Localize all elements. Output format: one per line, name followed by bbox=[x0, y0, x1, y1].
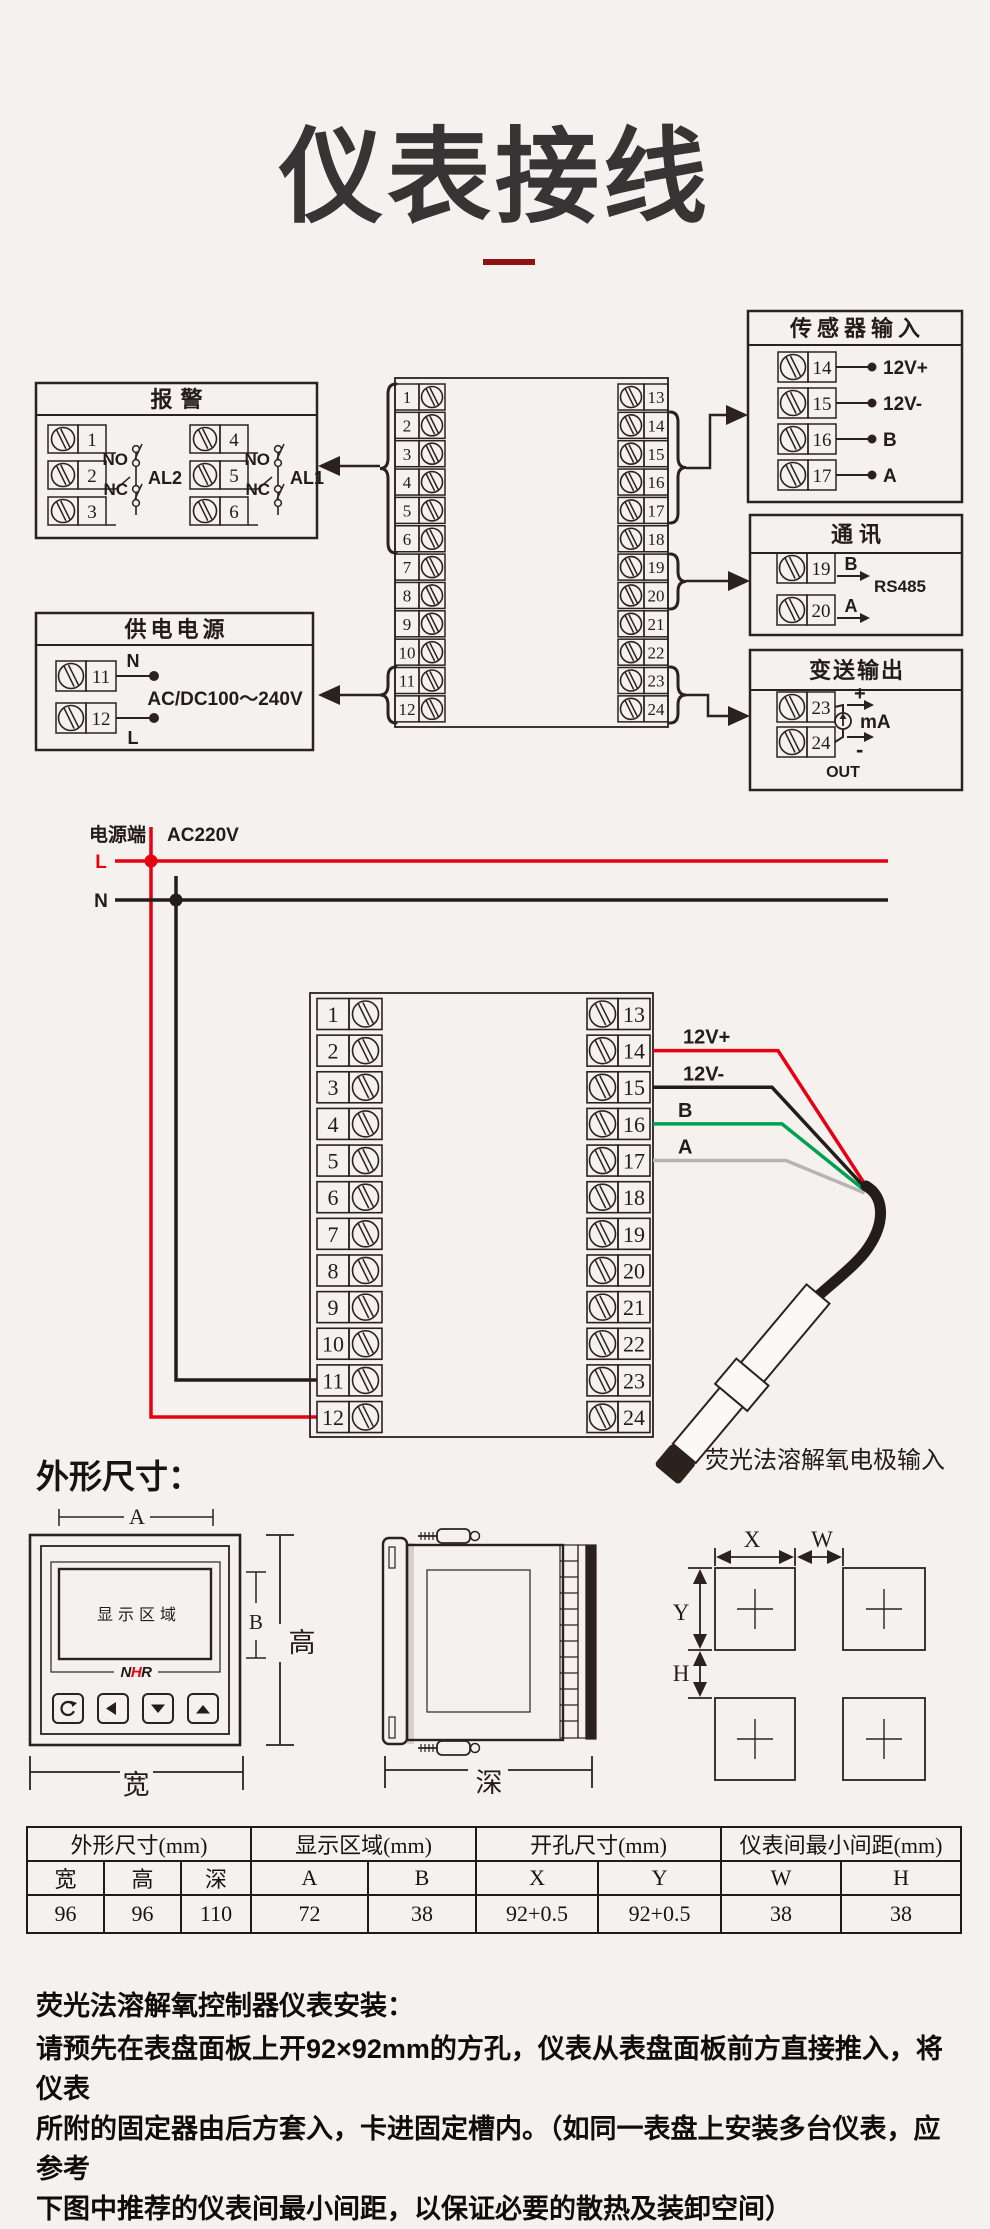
probe-cable bbox=[818, 1186, 881, 1296]
terminal-number: 9 bbox=[403, 615, 412, 634]
terminal-17: 17 bbox=[618, 497, 668, 523]
installation-line: 下图中推荐的仪表间最小间距，以保证必要的散热及装卸空间） bbox=[36, 2189, 960, 2229]
terminal-4: 4 bbox=[190, 425, 248, 453]
terminal-20: 20 bbox=[587, 1255, 650, 1286]
terminal-number: 24 bbox=[812, 733, 832, 754]
terminal-number: 5 bbox=[328, 1148, 339, 1173]
terminal-19: 19 bbox=[618, 554, 668, 580]
terminal-number: 19 bbox=[648, 558, 665, 577]
sensor-input-box: 传感器输入1412V+1512V-16B17A bbox=[748, 311, 962, 502]
terminal-4: 4 bbox=[395, 469, 445, 495]
terminal-23: 23 bbox=[587, 1365, 650, 1396]
terminal-number: 12 bbox=[399, 700, 416, 719]
installation-line: 请预先在表盘面板上开92×92mm的方孔，仪表从表盘面板前方直接推入，将仪表 bbox=[36, 2029, 960, 2109]
terminal-16: 16 bbox=[618, 469, 668, 495]
probe-wire-label: A bbox=[678, 1137, 692, 1159]
terminal-14: 14 bbox=[778, 352, 836, 382]
terminal-number: 17 bbox=[623, 1148, 645, 1173]
terminal-3: 3 bbox=[48, 497, 106, 525]
terminal-number: 20 bbox=[812, 601, 831, 622]
table-value: 38 bbox=[721, 1895, 841, 1933]
terminal-number: 14 bbox=[813, 358, 833, 379]
terminal-number: 2 bbox=[328, 1039, 339, 1064]
middle-terminal-block: 123456789101112131415161718192021222324 bbox=[310, 993, 653, 1437]
terminal-12: 12 bbox=[56, 703, 116, 733]
comm-box: 通讯19B20ARS485 bbox=[750, 515, 962, 635]
terminal-number: 17 bbox=[813, 466, 832, 487]
terminal-23: 23 bbox=[777, 692, 835, 722]
dimension-spec-table: 外形尺寸(mm) 显示区域(mm) 开孔尺寸(mm) 仪表间最小间距(mm) 宽… bbox=[26, 1826, 962, 1934]
comm-box-title: 通讯 bbox=[831, 522, 887, 547]
height-label: 高 bbox=[289, 1628, 316, 1658]
terminal-number: 5 bbox=[229, 466, 239, 487]
table-value: 92+0.5 bbox=[598, 1895, 721, 1933]
terminal-11: 11 bbox=[395, 668, 445, 694]
terminal-number: 18 bbox=[623, 1185, 645, 1210]
terminal-13: 13 bbox=[618, 384, 668, 410]
table-group-cutout: 开孔尺寸(mm) bbox=[476, 1827, 721, 1861]
sensor-signal-label: B bbox=[883, 430, 897, 451]
terminal-6: 6 bbox=[317, 1182, 382, 1213]
table-header: X bbox=[476, 1861, 598, 1895]
probe-wire-label: 12V- bbox=[683, 1063, 724, 1085]
terminal-8: 8 bbox=[395, 582, 445, 608]
terminal-number: 4 bbox=[229, 430, 239, 451]
connection-arrows bbox=[318, 384, 750, 726]
terminal-10: 10 bbox=[395, 639, 445, 665]
installation-line: 所附的固定器由后方套入，卡进固定槽内。（如同一表盘上安装多台仪表，应参考 bbox=[36, 2109, 960, 2189]
alarm-channel-label: AL2 bbox=[148, 468, 182, 488]
left-icon bbox=[106, 1702, 116, 1715]
terminal-number: 23 bbox=[812, 698, 831, 719]
terminal-number: 20 bbox=[648, 587, 665, 606]
terminal-number: 15 bbox=[813, 394, 832, 415]
terminal-number: 10 bbox=[399, 643, 416, 662]
no-label: NO bbox=[103, 450, 129, 469]
dimensions-heading: 外形尺寸： bbox=[36, 1450, 201, 1498]
table-value: 38 bbox=[368, 1895, 476, 1933]
mains-source-label: 电源端 bbox=[89, 823, 146, 846]
terminal-8: 8 bbox=[317, 1255, 382, 1286]
terminal-number: 15 bbox=[623, 1075, 645, 1100]
terminal-number: 21 bbox=[648, 615, 665, 634]
side-bezel bbox=[383, 1538, 407, 1744]
arrow-icon bbox=[728, 571, 750, 591]
ma-label: mA bbox=[860, 712, 891, 733]
terminal-number: 13 bbox=[648, 388, 665, 407]
front-view-drawing: A 显示区域 NHR B bbox=[30, 1504, 316, 1800]
terminal-number: 7 bbox=[328, 1222, 339, 1247]
brand-logo: NHR bbox=[120, 1664, 152, 1681]
terminal-number: 4 bbox=[403, 473, 412, 492]
terminal-12: 12 bbox=[317, 1402, 382, 1433]
probe-wiring: 12V+12V-BA荧光法溶解氧电极输入 bbox=[650, 1027, 945, 1489]
terminal-number: 2 bbox=[403, 416, 412, 435]
table-value: 92+0.5 bbox=[476, 1895, 598, 1933]
terminal-2: 2 bbox=[395, 412, 445, 438]
alarm-box-title: 报警 bbox=[150, 387, 210, 412]
terminal-14: 14 bbox=[587, 1035, 650, 1066]
terminal-number: 3 bbox=[403, 445, 412, 464]
out-label: OUT bbox=[826, 764, 860, 781]
terminal-6: 6 bbox=[190, 497, 248, 525]
top-terminal-block: 123456789101112131415161718192021222324 bbox=[395, 378, 668, 727]
dim-b-label: B bbox=[249, 1610, 263, 1634]
terminal-number: 12 bbox=[92, 709, 111, 730]
sensor-signal-label: 12V+ bbox=[883, 358, 928, 379]
l-label: L bbox=[95, 852, 107, 873]
terminal-number: 2 bbox=[87, 466, 97, 487]
brace bbox=[380, 667, 396, 723]
terminal-1: 1 bbox=[48, 425, 106, 453]
terminal-17: 17 bbox=[587, 1145, 650, 1176]
terminal-number: 1 bbox=[87, 430, 97, 451]
terminal-number: 18 bbox=[648, 530, 665, 549]
terminal-15: 15 bbox=[618, 441, 668, 467]
protocol-label: RS485 bbox=[874, 577, 926, 596]
terminal-14: 14 bbox=[618, 412, 668, 438]
side-body bbox=[407, 1545, 563, 1740]
terminal-number: 4 bbox=[328, 1112, 339, 1137]
installation-heading: 荧光法溶解氧控制器仪表安装： bbox=[36, 1986, 960, 2026]
down-icon bbox=[151, 1705, 165, 1714]
center-marks bbox=[737, 1589, 902, 1759]
brace bbox=[670, 667, 686, 723]
terminal-number: 3 bbox=[87, 502, 97, 523]
cutout-h-label: H bbox=[673, 1661, 690, 1686]
cutout-w-label: W bbox=[811, 1527, 833, 1552]
terminal-15: 15 bbox=[587, 1072, 650, 1103]
terminal-17: 17 bbox=[778, 460, 836, 490]
terminal-16: 16 bbox=[778, 424, 836, 454]
table-value: 96 bbox=[104, 1895, 181, 1933]
terminal-number: 22 bbox=[648, 643, 665, 662]
terminal-2: 2 bbox=[317, 1035, 382, 1066]
terminal-number: 15 bbox=[648, 445, 665, 464]
generated-wiring: 123456789101112131415161718192021222324报… bbox=[36, 311, 962, 1488]
terminal-16: 16 bbox=[587, 1108, 650, 1139]
terminal-24: 24 bbox=[777, 727, 835, 757]
terminal-number: 9 bbox=[328, 1295, 339, 1320]
terminal-number: 16 bbox=[623, 1112, 645, 1137]
table-value: 38 bbox=[841, 1895, 961, 1933]
return-button[interactable] bbox=[53, 1694, 83, 1723]
terminal-11: 11 bbox=[56, 661, 116, 691]
terminal-18: 18 bbox=[587, 1182, 650, 1213]
terminal-22: 22 bbox=[587, 1328, 650, 1359]
table-group-spacing: 仪表间最小间距(mm) bbox=[721, 1827, 961, 1861]
terminal-number: 23 bbox=[648, 672, 665, 691]
comm-signal-label: B bbox=[845, 554, 858, 574]
arrow-icon bbox=[860, 571, 870, 581]
terminal-number: 17 bbox=[648, 502, 666, 521]
terminal-12: 12 bbox=[395, 696, 445, 722]
terminal-9: 9 bbox=[317, 1292, 382, 1323]
sensor-signal-label: 12V- bbox=[883, 394, 922, 415]
terminal-3: 3 bbox=[317, 1072, 382, 1103]
arrow-icon bbox=[864, 732, 874, 742]
alarm-channel-label: AL1 bbox=[290, 468, 324, 488]
table-header: H bbox=[841, 1861, 961, 1895]
power-range-label: AC/DC100～240V bbox=[147, 689, 303, 710]
nc-label: NC bbox=[245, 480, 270, 499]
power-supply-box-title: 供电电源 bbox=[123, 617, 228, 642]
terminal-number: 12 bbox=[322, 1405, 344, 1430]
cutout-drawing: X W Y H bbox=[673, 1527, 925, 1780]
terminal-number: 6 bbox=[328, 1185, 339, 1210]
alarm-group-AL2: 123NONCAL2 bbox=[48, 425, 182, 525]
terminal-number: 6 bbox=[229, 502, 239, 523]
terminal-9: 9 bbox=[395, 611, 445, 637]
depth-label: 深 bbox=[476, 1768, 503, 1798]
terminal-20: 20 bbox=[777, 595, 835, 625]
terminal-number: 24 bbox=[623, 1405, 645, 1430]
comm-signal-label: A bbox=[845, 596, 858, 616]
table-header: B bbox=[368, 1861, 476, 1895]
table-header: 宽 bbox=[27, 1861, 104, 1895]
arrow-icon bbox=[726, 405, 748, 425]
terminal-13: 13 bbox=[587, 999, 650, 1030]
side-terminal-strip bbox=[560, 1545, 596, 1739]
table-header: Y bbox=[598, 1861, 721, 1895]
terminal-number: 11 bbox=[92, 667, 110, 688]
sensor-signal-label: A bbox=[883, 466, 897, 487]
probe-wire-label: 12V+ bbox=[683, 1027, 730, 1049]
terminal-number: 6 bbox=[403, 530, 412, 549]
arrow-icon bbox=[864, 700, 874, 710]
table-group-outline: 外形尺寸(mm) bbox=[27, 1827, 251, 1861]
table-header: 高 bbox=[104, 1861, 181, 1895]
terminal-number: 8 bbox=[403, 587, 412, 606]
terminal-1: 1 bbox=[317, 999, 382, 1030]
alarm-box: 报警123NONCAL2456NONCAL1 bbox=[36, 383, 324, 538]
panel-inner bbox=[41, 1546, 229, 1734]
brace bbox=[670, 554, 686, 609]
terminal-19: 19 bbox=[587, 1218, 650, 1249]
cutout-x-label: X bbox=[744, 1527, 761, 1552]
arrow-icon bbox=[318, 685, 340, 705]
terminal-number: 11 bbox=[322, 1368, 343, 1393]
terminal-5: 5 bbox=[190, 461, 248, 489]
alarm-group-AL1: 456NONCAL1 bbox=[190, 425, 324, 525]
table-value: 72 bbox=[251, 1895, 368, 1933]
terminal-24: 24 bbox=[587, 1402, 650, 1433]
display-area-label: 显示区域 bbox=[97, 1606, 181, 1624]
terminal-number: 7 bbox=[403, 558, 412, 577]
sensor-input-box-title: 传感器输入 bbox=[789, 316, 925, 341]
terminal-10: 10 bbox=[317, 1328, 382, 1359]
terminal-5: 5 bbox=[395, 497, 445, 523]
n-label: N bbox=[94, 891, 108, 912]
output-box-title: 变送输出 bbox=[809, 658, 905, 683]
width-label: 宽 bbox=[123, 1770, 150, 1800]
power-supply-box: 供电电源11N12LAC/DC100～240V bbox=[36, 613, 313, 750]
terminal-7: 7 bbox=[317, 1218, 382, 1249]
table-header: A bbox=[251, 1861, 368, 1895]
terminal-number: 3 bbox=[328, 1075, 339, 1100]
dim-y-h bbox=[688, 1568, 712, 1698]
table-header: W bbox=[721, 1861, 841, 1895]
terminal-23: 23 bbox=[618, 668, 668, 694]
terminal-24: 24 bbox=[618, 696, 668, 722]
power-terminal-label: N bbox=[127, 651, 140, 671]
minus-label: - bbox=[856, 737, 863, 762]
output-box: 变送输出2324+-mAOUT bbox=[750, 650, 962, 790]
table-header: 深 bbox=[181, 1861, 251, 1895]
no-label: NO bbox=[245, 450, 271, 469]
arrow-icon bbox=[860, 613, 870, 623]
terminal-21: 21 bbox=[587, 1292, 650, 1323]
terminal-15: 15 bbox=[778, 388, 836, 418]
terminal-number: 5 bbox=[403, 502, 412, 521]
terminal-number: 16 bbox=[648, 473, 665, 492]
terminal-number: 16 bbox=[813, 430, 832, 451]
terminal-4: 4 bbox=[317, 1108, 382, 1139]
power-terminal-label: L bbox=[128, 728, 139, 748]
mains-voltage-label: AC220V bbox=[167, 825, 239, 846]
terminal-number: 1 bbox=[403, 388, 412, 407]
terminal-19: 19 bbox=[777, 553, 835, 583]
terminal-3: 3 bbox=[395, 441, 445, 467]
table-value: 110 bbox=[181, 1895, 251, 1933]
terminal-2: 2 bbox=[48, 461, 106, 489]
probe-wire-label: B bbox=[678, 1100, 692, 1122]
probe-caption: 荧光法溶解氧电极输入 bbox=[705, 1447, 945, 1474]
terminal-number: 21 bbox=[623, 1295, 645, 1320]
terminal-number: 22 bbox=[623, 1332, 645, 1357]
terminal-number: 1 bbox=[328, 1002, 339, 1027]
terminal-6: 6 bbox=[395, 526, 445, 552]
terminal-number: 10 bbox=[322, 1332, 344, 1357]
cutout-y-label: Y bbox=[673, 1600, 690, 1625]
terminal-number: 24 bbox=[648, 700, 666, 719]
brace bbox=[670, 412, 686, 523]
terminal-11: 11 bbox=[317, 1365, 382, 1396]
terminal-number: 19 bbox=[623, 1222, 645, 1247]
nc-label: NC bbox=[103, 480, 128, 499]
arrow-icon bbox=[728, 706, 750, 726]
installation-instructions: 荧光法溶解氧控制器仪表安装： 请预先在表盘面板上开92×92mm的方孔，仪表从表… bbox=[36, 1986, 960, 2229]
plus-label: + bbox=[854, 683, 866, 705]
terminal-5: 5 bbox=[317, 1145, 382, 1176]
terminal-18: 18 bbox=[618, 526, 668, 552]
terminal-number: 14 bbox=[648, 416, 666, 435]
table-group-display: 显示区域(mm) bbox=[251, 1827, 476, 1861]
terminal-21: 21 bbox=[618, 611, 668, 637]
terminal-number: 8 bbox=[328, 1258, 339, 1283]
terminal-number: 19 bbox=[812, 559, 831, 580]
up-icon bbox=[196, 1705, 210, 1714]
dim-a-label: A bbox=[129, 1504, 145, 1529]
brace bbox=[380, 384, 396, 553]
terminal-1: 1 bbox=[395, 384, 445, 410]
side-view-drawing: 深 bbox=[383, 1529, 596, 1798]
table-value: 96 bbox=[27, 1895, 104, 1933]
terminal-22: 22 bbox=[618, 639, 668, 665]
terminal-number: 20 bbox=[623, 1258, 645, 1283]
terminal-number: 11 bbox=[399, 672, 415, 691]
mains-lines: 电源端AC220VLN bbox=[89, 823, 888, 1417]
side-window bbox=[427, 1570, 530, 1712]
terminal-number: 14 bbox=[623, 1039, 645, 1064]
terminal-number: 13 bbox=[623, 1002, 645, 1027]
terminal-7: 7 bbox=[395, 554, 445, 580]
terminal-20: 20 bbox=[618, 582, 668, 608]
terminal-number: 23 bbox=[623, 1368, 645, 1393]
